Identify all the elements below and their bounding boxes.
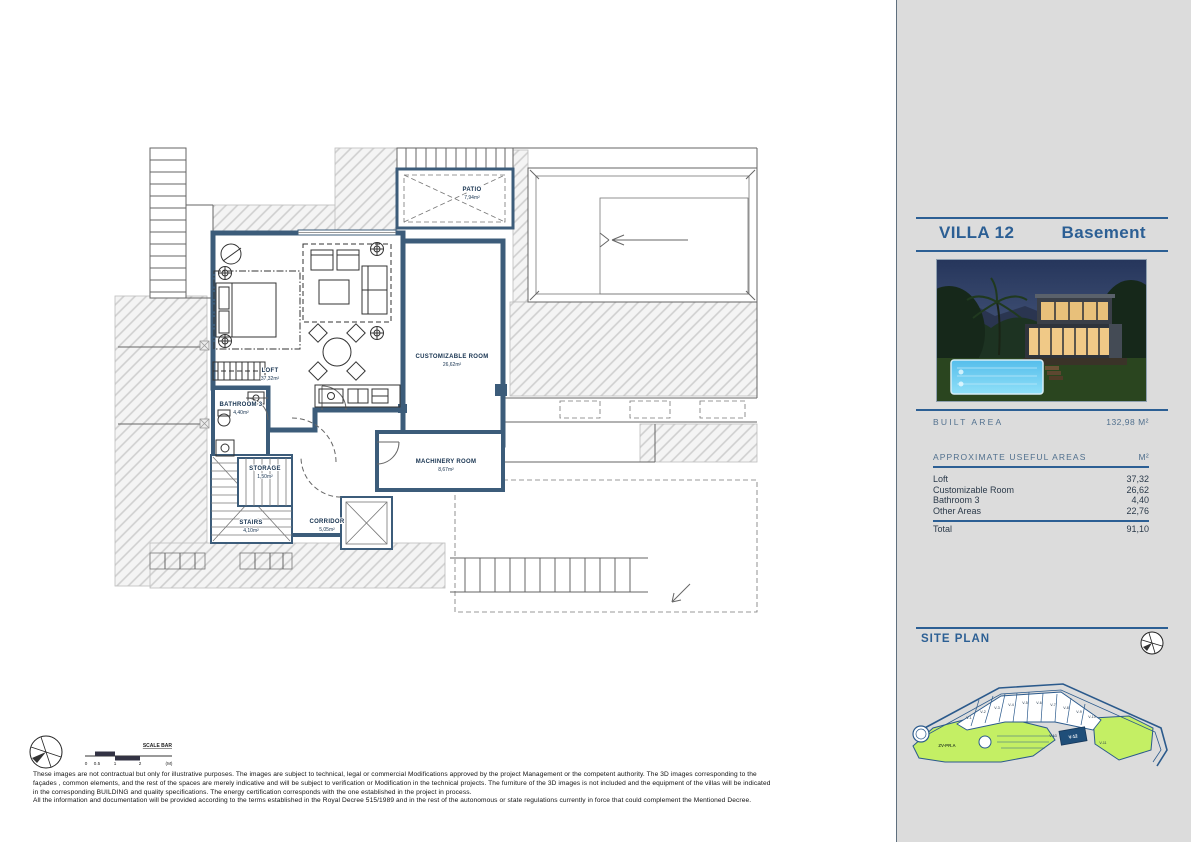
svg-text:V-5: V-5 [1022, 701, 1027, 705]
divider [916, 627, 1168, 629]
table-row: Other Areas 22,76 [933, 506, 1149, 517]
svg-text:5,05m²: 5,05m² [319, 527, 335, 533]
room-label-bathroom-3: BATHROOM 3 [220, 402, 263, 408]
zone-label: ZV-PR.A [938, 743, 956, 748]
site-plan-map: V-1 V-2 V-3 V-4 V-5 V-6 V-7 V-8 V-9 V-10… [905, 666, 1185, 776]
svg-text:V-2: V-2 [980, 710, 985, 714]
built-area-row: BUILT AREA 132,98 M² [933, 417, 1149, 427]
spotlight-icon [219, 335, 232, 348]
room-label-corridor: CORRIDOR [309, 519, 344, 525]
disclaimer-line: These images are not contractual but onl… [33, 771, 853, 780]
svg-text:V-7: V-7 [1050, 703, 1055, 707]
svg-text:(M): (M) [166, 761, 173, 766]
north-compass-icon [30, 736, 62, 768]
disclaimer-line: in the corresponding BUILDING and qualit… [33, 789, 853, 798]
info-sidebar: VILLA 12 Basement [896, 0, 1191, 842]
spotlight-icon [371, 243, 384, 256]
svg-text:V-3: V-3 [994, 706, 999, 710]
svg-text:V-8: V-8 [1063, 706, 1068, 710]
scale-bar-label: SCALE BAR [143, 743, 173, 749]
floor-plan-drawing: PATIO 7,94m² LOFT 37,32m² CUSTOMIZABLE R… [0, 0, 900, 770]
spotlight-icon [219, 267, 232, 280]
disclaimer-line: All the information and documentation wi… [33, 797, 853, 806]
room-label-machinery-room: MACHINERY ROOM [416, 459, 477, 465]
svg-text:V-11: V-11 [1099, 741, 1106, 745]
cul-de-sac [913, 726, 929, 742]
table-row: Bathroom 3 4,40 [933, 495, 1149, 506]
svg-text:4,40m²: 4,40m² [233, 410, 249, 416]
compass-icon [1139, 630, 1165, 656]
svg-text:0.5: 0.5 [94, 761, 101, 766]
site-plan-heading: SITE PLAN [921, 633, 990, 645]
useful-areas-table: Loft 37,32 Customizable Room 26,62 Bathr… [933, 474, 1149, 516]
svg-text:0: 0 [85, 761, 88, 766]
total-row: Total 91,10 [933, 524, 1149, 534]
title-row: VILLA 12 Basement [897, 223, 1191, 243]
divider [916, 250, 1168, 252]
upper-exterior-stairs [397, 148, 513, 169]
svg-text:V-1: V-1 [966, 716, 971, 720]
room-label-patio: PATIO [463, 187, 482, 193]
svg-text:4,10m²: 4,10m² [243, 528, 259, 534]
total-value: 91,10 [1126, 524, 1149, 534]
disclaimer-line: façades , common elements, and the rest … [33, 780, 853, 789]
svg-text:37,32m²: 37,32m² [261, 376, 280, 382]
svg-text:26,62m²: 26,62m² [443, 362, 462, 368]
divider [916, 409, 1168, 411]
disclaimer-text: These images are not contractual but onl… [33, 771, 853, 806]
brochure-page: PATIO 7,94m² LOFT 37,32m² CUSTOMIZABLE R… [0, 0, 1191, 842]
svg-text:V-4: V-4 [1008, 703, 1013, 707]
svg-text:1: 1 [114, 761, 117, 766]
spotlight-icon [371, 327, 384, 340]
scale-bar: SCALE BAR 0 0.5 1 2 (M) [85, 743, 173, 766]
useful-areas-unit: M² [1138, 452, 1149, 462]
highlighted-plot: V-12 [1059, 727, 1087, 745]
built-area-label: BUILT AREA [933, 417, 1003, 427]
table-row: Customizable Room 26,62 [933, 485, 1149, 496]
villa-title: VILLA 12 [939, 223, 1014, 243]
useful-areas-heading: APPROXIMATE USEFUL AREAS [933, 452, 1086, 462]
table-row: Loft 37,32 [933, 474, 1149, 485]
room-label-storage: STORAGE [249, 466, 281, 472]
svg-text:V-13: V-13 [1049, 734, 1056, 738]
svg-text:1,50m²: 1,50m² [257, 474, 273, 480]
total-label: Total [933, 524, 952, 534]
divider [933, 520, 1149, 522]
svg-text:V-9: V-9 [1076, 710, 1081, 714]
svg-text:V-10: V-10 [1088, 715, 1095, 719]
roundabout [979, 736, 991, 748]
svg-text:8,67m²: 8,67m² [438, 467, 454, 473]
room-label-stairs: STAIRS [239, 520, 262, 526]
villa-photo [936, 259, 1147, 402]
divider [933, 466, 1149, 468]
svg-text:2: 2 [139, 761, 142, 766]
svg-text:V-6: V-6 [1036, 701, 1041, 705]
green-zone [1093, 716, 1153, 760]
svg-text:7,94m²: 7,94m² [464, 195, 480, 201]
useful-areas-heading-row: APPROXIMATE USEFUL AREAS M² [933, 452, 1149, 462]
built-area-value: 132,98 M² [1106, 417, 1149, 427]
divider [916, 217, 1168, 219]
room-label-loft: LOFT [262, 368, 279, 374]
floor-title: Basement [1062, 223, 1146, 243]
room-label-customizable-room: CUSTOMIZABLE ROOM [416, 354, 489, 360]
